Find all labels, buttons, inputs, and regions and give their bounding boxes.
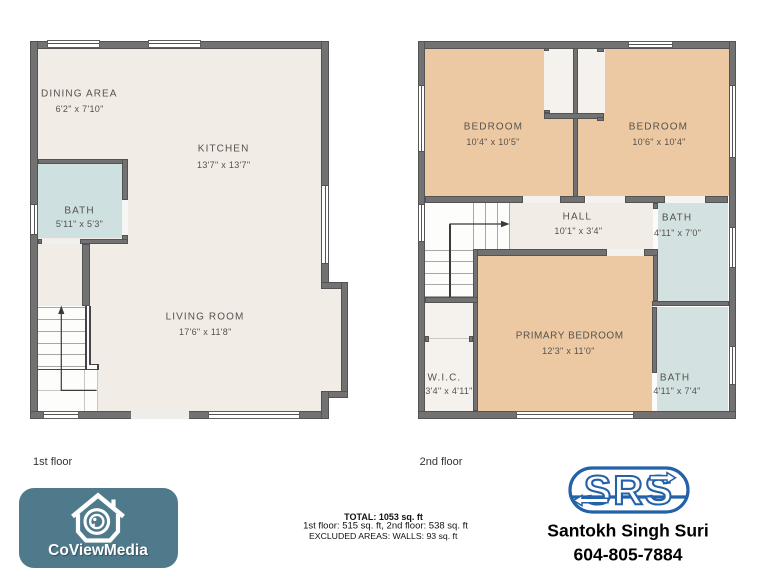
svg-text:SRS: SRS: [584, 467, 674, 513]
